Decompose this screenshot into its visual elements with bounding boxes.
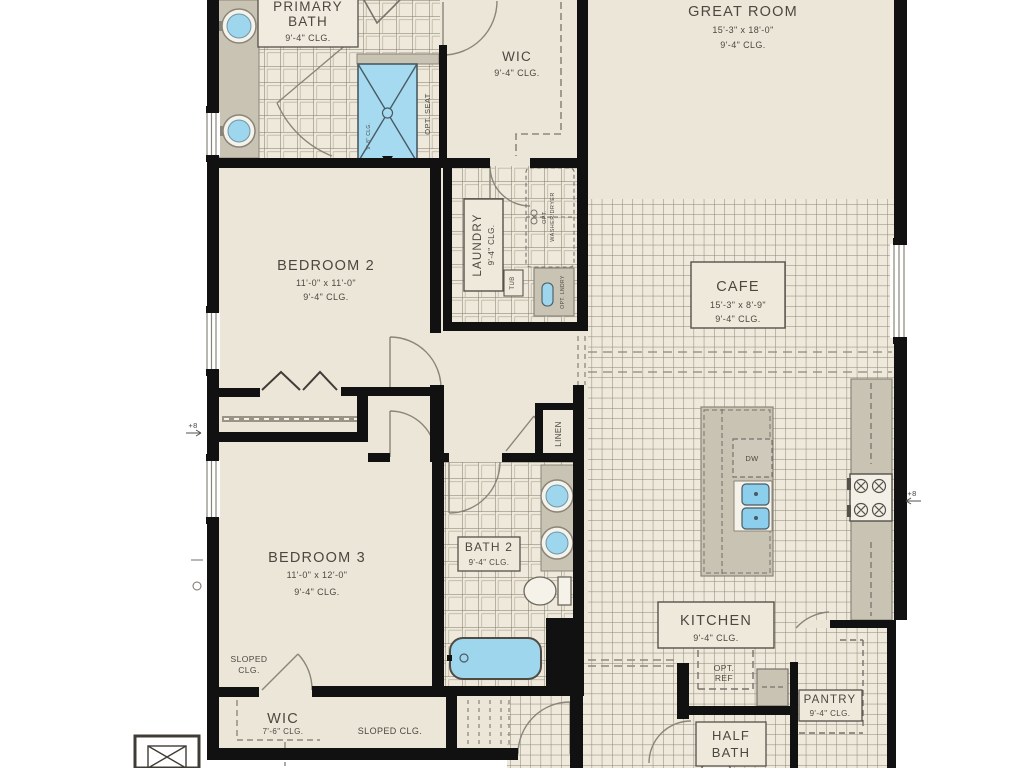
svg-text:CLG.: CLG. bbox=[238, 665, 259, 675]
svg-text:TUB: TUB bbox=[510, 276, 516, 289]
svg-text:9'-4" CLG.: 9'-4" CLG. bbox=[810, 709, 851, 718]
svg-text:OPT.: OPT. bbox=[714, 663, 735, 673]
svg-text:KITCHEN: KITCHEN bbox=[680, 613, 752, 629]
svg-text:PRIMARY: PRIMARY bbox=[273, 0, 343, 14]
svg-text:GREAT ROOM: GREAT ROOM bbox=[688, 4, 798, 20]
svg-text:+8: +8 bbox=[907, 489, 916, 498]
svg-text:OPT.: OPT. bbox=[542, 210, 548, 224]
svg-text:DW: DW bbox=[745, 454, 759, 463]
svg-text:9'-4" CLG.: 9'-4" CLG. bbox=[487, 225, 496, 266]
svg-text:15'-3" x 18'-0": 15'-3" x 18'-0" bbox=[712, 25, 773, 35]
svg-text:BATH 2: BATH 2 bbox=[465, 540, 513, 554]
svg-text:9'-4" CLG.: 9'-4" CLG. bbox=[494, 68, 539, 78]
svg-text:9'-4" CLG.: 9'-4" CLG. bbox=[303, 292, 348, 302]
svg-text:11'-0" x 12'-0": 11'-0" x 12'-0" bbox=[287, 570, 348, 580]
svg-text:9'-4" CLG.: 9'-4" CLG. bbox=[715, 314, 760, 324]
svg-text:REF: REF bbox=[715, 673, 733, 683]
svg-text:WIC: WIC bbox=[502, 49, 532, 64]
svg-text:PANTRY: PANTRY bbox=[804, 694, 857, 706]
svg-text:CAFE: CAFE bbox=[716, 279, 759, 295]
svg-text:9'-8" CLG.: 9'-8" CLG. bbox=[366, 122, 372, 149]
svg-text:HALF: HALF bbox=[712, 728, 750, 743]
svg-text:7'-6" CLG.: 7'-6" CLG. bbox=[263, 727, 304, 736]
svg-text:9'-4" CLG.: 9'-4" CLG. bbox=[285, 33, 330, 43]
svg-text:9'-4" CLG.: 9'-4" CLG. bbox=[720, 40, 765, 50]
svg-text:BEDROOM 3: BEDROOM 3 bbox=[268, 550, 366, 566]
svg-text:WASHER/DRYER: WASHER/DRYER bbox=[550, 192, 556, 241]
svg-text:9'-4" CLG.: 9'-4" CLG. bbox=[693, 633, 738, 643]
svg-text:+8: +8 bbox=[188, 421, 197, 430]
svg-text:OPT. LNDRY: OPT. LNDRY bbox=[560, 275, 566, 309]
svg-text:9'-4" CLG.: 9'-4" CLG. bbox=[469, 558, 510, 567]
svg-text:BATH: BATH bbox=[712, 745, 751, 760]
svg-text:SLOPED CLG.: SLOPED CLG. bbox=[358, 726, 422, 736]
svg-text:11'-0" x 11'-0": 11'-0" x 11'-0" bbox=[296, 278, 356, 288]
svg-text:SLOPED: SLOPED bbox=[231, 654, 268, 664]
svg-text:15'-3" x 8'-9": 15'-3" x 8'-9" bbox=[710, 300, 766, 310]
svg-text:BATH: BATH bbox=[288, 14, 328, 29]
svg-text:WIC: WIC bbox=[267, 711, 299, 727]
svg-text:9'-4" CLG.: 9'-4" CLG. bbox=[294, 587, 339, 597]
svg-text:OPT. SEAT: OPT. SEAT bbox=[423, 93, 432, 134]
svg-text:LAUNDRY: LAUNDRY bbox=[472, 213, 484, 276]
svg-text:LINEN: LINEN bbox=[554, 421, 563, 447]
svg-text:BEDROOM 2: BEDROOM 2 bbox=[277, 258, 375, 274]
